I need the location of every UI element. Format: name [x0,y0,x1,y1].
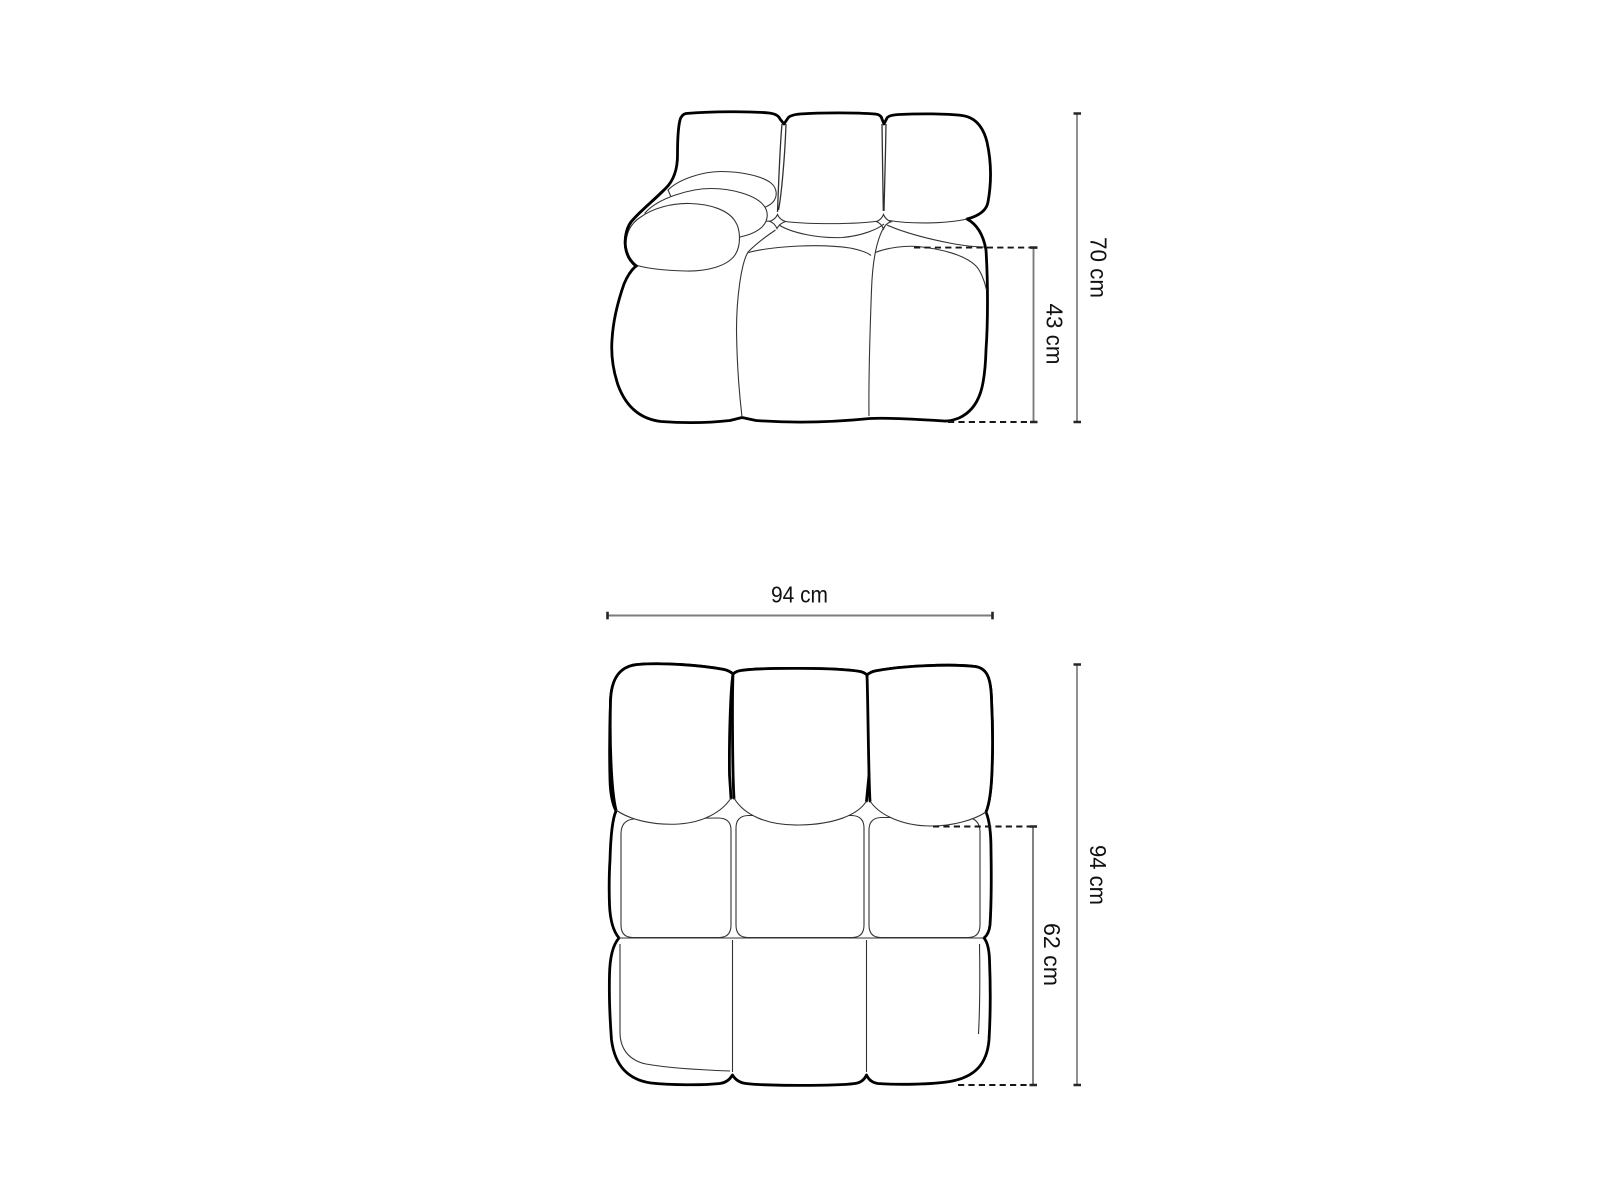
svg-text:62 cm: 62 cm [1039,923,1065,986]
svg-text:70 cm: 70 cm [1086,237,1112,298]
svg-text:94 cm: 94 cm [771,582,828,608]
svg-text:94 cm: 94 cm [1085,845,1111,905]
svg-text:43 cm: 43 cm [1042,304,1068,365]
